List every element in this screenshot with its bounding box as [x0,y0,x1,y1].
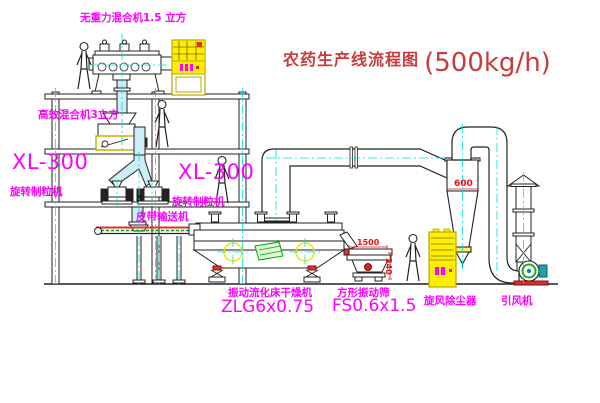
belt-conveyor [95,228,202,284]
diagram-title: 农药生产线流程图 (500kg/h) [283,46,551,78]
dim-sieve-length: 1500 [357,239,379,247]
fluid-bed-dryer [189,212,357,282]
label-high-efficiency-mixer: 高效混合机3立方 [38,110,119,121]
label-granulator-center-model: XL-300 [178,162,254,183]
fan-motor [539,265,547,277]
label-fan: 引风机 [501,296,533,307]
label-belt-conveyor: 皮带输送机 [136,212,189,223]
title-text: 农药生产线流程图 [283,50,419,69]
granulator-center [137,181,169,204]
label-granulator-left-model: XL-300 [12,152,88,173]
dim-cyclone-diameter: 600 [454,180,473,189]
label-granulator-center-name: 旋转制粒机 [172,197,225,208]
label-dryer-model: ZLG6x0.75 [221,299,314,316]
dim-sieve-height: 340 [384,258,392,275]
label-cyclone: 旋风除尘器 [424,296,477,307]
label-sieve-model: FS0.6x1.5 [332,298,416,315]
control-cabinet-top [172,40,205,95]
label-granulator-left-name: 旋转制粒机 [10,187,63,198]
label-gravity-free-mixer: 无重力混合机1.5 立方 [80,13,186,24]
title-capacity: (500kg/h) [424,48,551,78]
process-flow-diagram: 农药生产线流程图 (500kg/h) 无重力混合机1.5 立方 高效混合机3立方… [0,0,600,403]
control-cabinet-right [429,229,456,287]
worker-ground [406,235,420,282]
